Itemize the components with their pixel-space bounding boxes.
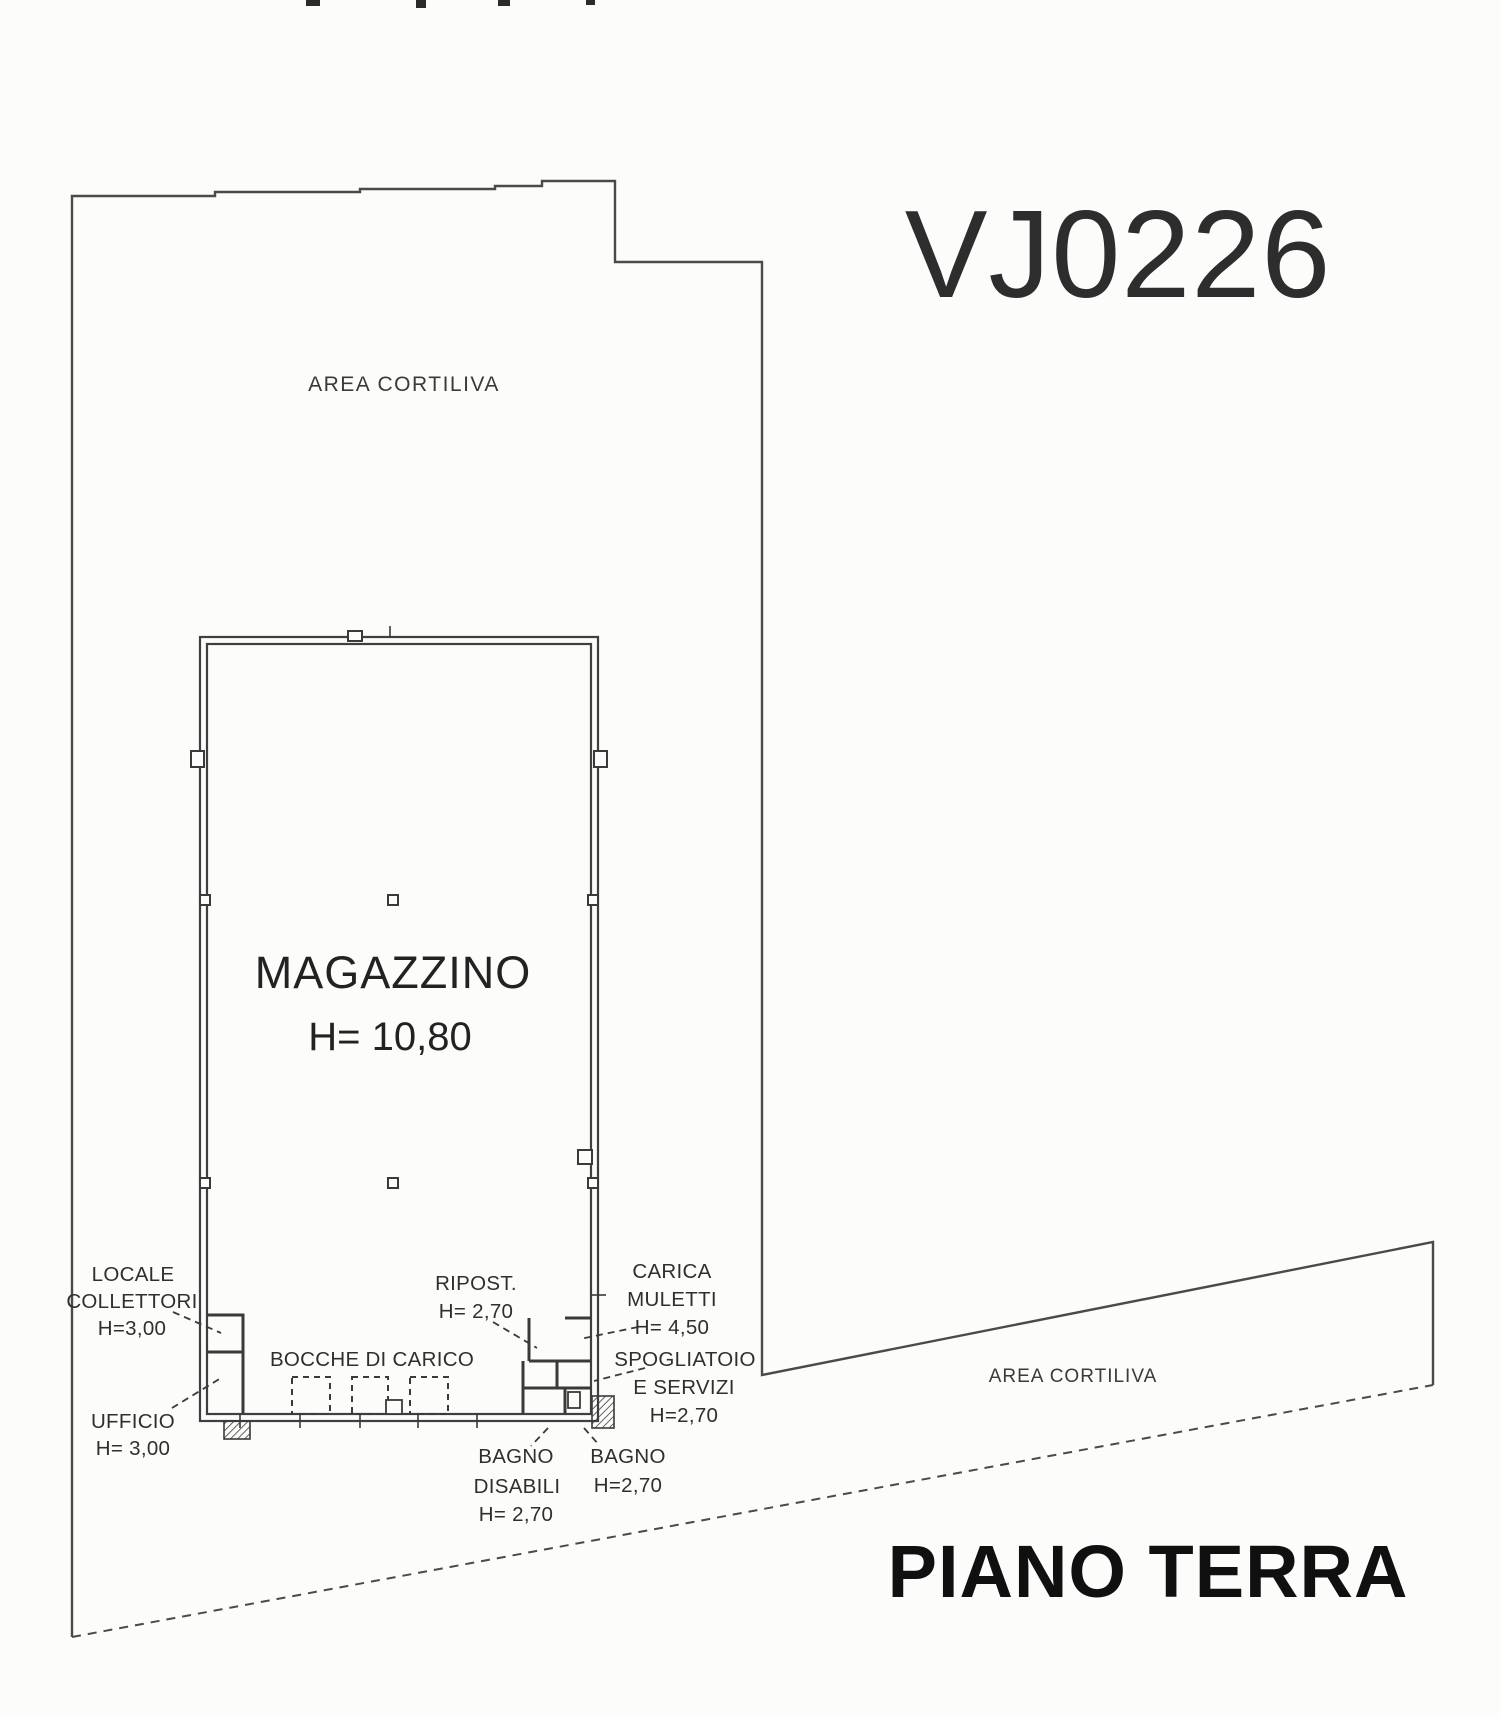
pillar bbox=[388, 895, 398, 905]
label-bagno-disabili-1: BAGNO bbox=[478, 1445, 554, 1468]
label-locale: LOCALE bbox=[92, 1263, 175, 1286]
wall-pilaster-right bbox=[594, 751, 607, 767]
label-carica-height: H= 4,50 bbox=[635, 1316, 709, 1339]
label-carica: CARICA bbox=[632, 1260, 711, 1283]
scan-artifact bbox=[306, 0, 320, 6]
scan-artifact bbox=[498, 0, 510, 6]
top-wall-tick bbox=[348, 631, 362, 641]
label-ripost: RIPOST. bbox=[435, 1272, 517, 1295]
label-bagno: BAGNO bbox=[590, 1445, 666, 1468]
label-magazzino-height: H= 10,80 bbox=[308, 1015, 471, 1059]
label-ripost-height: H= 2,70 bbox=[439, 1300, 513, 1323]
loading-bay bbox=[292, 1377, 330, 1414]
label-bagno-disabili-height: H= 2,70 bbox=[479, 1503, 553, 1526]
label-area-cortiliva-right: AREA CORTILIVA bbox=[989, 1366, 1158, 1387]
leader-carica-muletti bbox=[580, 1327, 638, 1339]
label-bocche-di-carico: BOCCHE DI CARICO bbox=[270, 1348, 474, 1371]
label-bagno-height: H=2,70 bbox=[594, 1474, 662, 1497]
floor-title: PIANO TERRA bbox=[888, 1530, 1409, 1613]
loading-bay bbox=[410, 1377, 448, 1414]
pillar bbox=[200, 1178, 210, 1188]
label-area-cortiliva-top: AREA CORTILIVA bbox=[308, 373, 500, 396]
entry-steps-right bbox=[592, 1396, 614, 1428]
entry-steps-left bbox=[224, 1421, 250, 1439]
plot-boundary bbox=[72, 181, 1433, 1637]
partition-locale-collettori-ufficio bbox=[207, 1315, 243, 1414]
scan-artifact bbox=[586, 0, 595, 5]
label-e-servizi: E SERVIZI bbox=[633, 1376, 734, 1399]
leader-bagno bbox=[584, 1428, 600, 1446]
floor-plan-sheet: VJ0226 AREA CORTILIVA MAGAZZINO H= 10,80… bbox=[0, 0, 1500, 1719]
listing-code: VJ0226 bbox=[905, 186, 1332, 324]
wall-pilaster-right-2 bbox=[578, 1150, 592, 1164]
service-door bbox=[568, 1392, 580, 1408]
leader-bagno-disabili bbox=[531, 1428, 548, 1446]
wall-pilaster-left bbox=[191, 751, 204, 767]
label-spogliatoio: SPOGLIATOIO bbox=[614, 1348, 756, 1371]
floor-plan-drawing: VJ0226 AREA CORTILIVA MAGAZZINO H= 10,80… bbox=[0, 0, 1500, 1719]
pillar bbox=[588, 1178, 598, 1188]
room-ripost-partition bbox=[529, 1318, 591, 1361]
pillar bbox=[388, 1178, 398, 1188]
label-locale-height: H=3,00 bbox=[98, 1317, 166, 1340]
loading-bay bbox=[352, 1377, 388, 1414]
scan-artifact bbox=[416, 0, 426, 8]
label-bagno-disabili-2: DISABILI bbox=[474, 1475, 561, 1498]
label-magazzino: MAGAZZINO bbox=[255, 947, 532, 998]
leader-ufficio bbox=[172, 1378, 221, 1408]
pillar bbox=[588, 895, 598, 905]
label-ufficio: UFFICIO bbox=[91, 1410, 175, 1433]
loading-door bbox=[386, 1400, 402, 1414]
pillar bbox=[200, 895, 210, 905]
label-ufficio-height: H= 3,00 bbox=[96, 1437, 170, 1460]
label-spogliatoio-height: H=2,70 bbox=[650, 1404, 718, 1427]
label-muletti: MULETTI bbox=[627, 1288, 717, 1311]
label-collettori: COLLETTORI bbox=[66, 1290, 197, 1313]
